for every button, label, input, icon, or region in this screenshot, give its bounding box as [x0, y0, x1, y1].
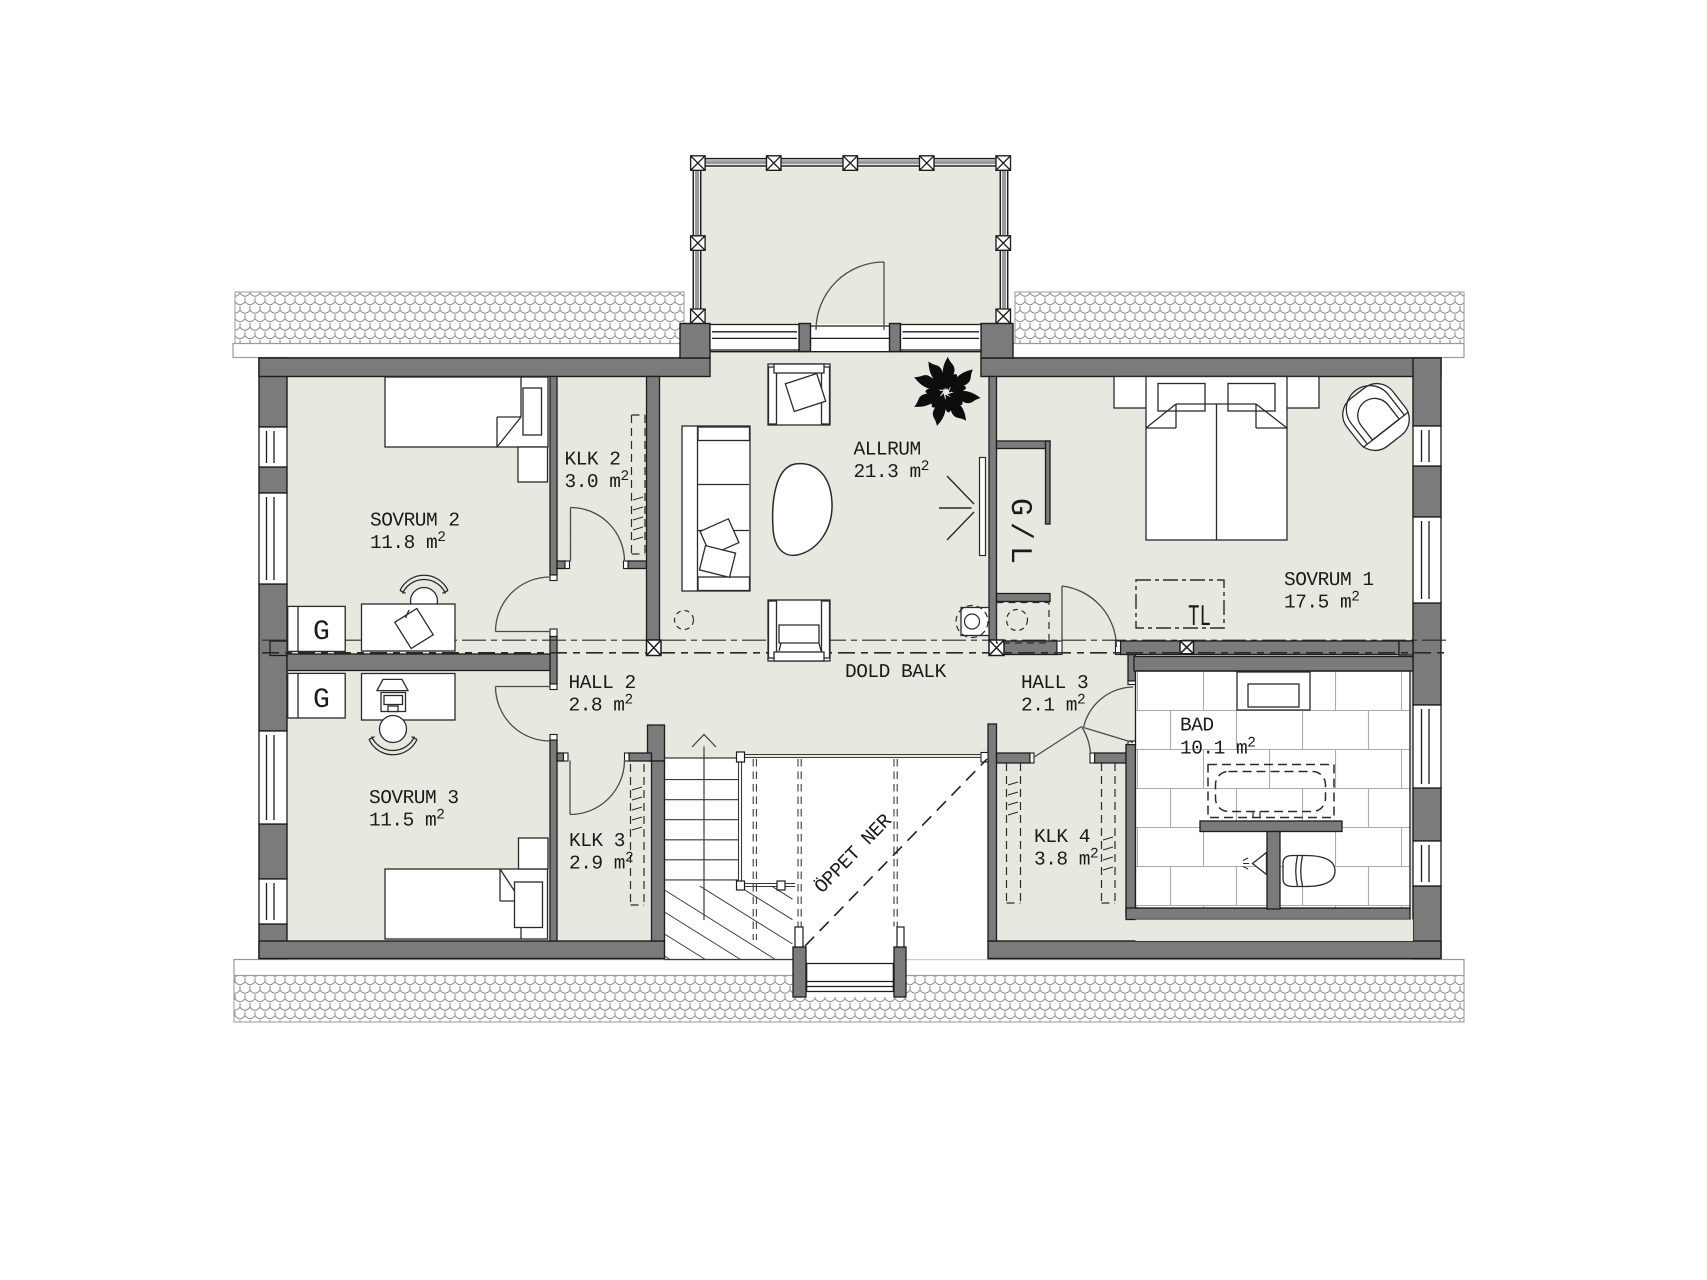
- svg-text:G: G: [313, 685, 330, 716]
- svg-text:DOLD BALK: DOLD BALK: [845, 661, 947, 683]
- svg-text:2.1 m2: 2.1 m2: [1021, 693, 1085, 717]
- svg-text:SOVRUM 3: SOVRUM 3: [369, 787, 459, 809]
- svg-text:11.8 m2: 11.8 m2: [370, 530, 445, 554]
- svg-text:21.3 m2: 21.3 m2: [854, 459, 929, 483]
- svg-text:11.5 m2: 11.5 m2: [369, 808, 444, 832]
- svg-text:17.5 m2: 17.5 m2: [1284, 590, 1359, 614]
- svg-text:SOVRUM 2: SOVRUM 2: [370, 510, 460, 532]
- svg-text:HALL 3: HALL 3: [1021, 672, 1088, 694]
- svg-text:2.8 m2: 2.8 m2: [569, 693, 633, 717]
- svg-text:G/L: G/L: [1002, 498, 1036, 570]
- svg-text:G: G: [313, 617, 330, 648]
- svg-text:SOVRUM 1: SOVRUM 1: [1284, 569, 1374, 591]
- svg-text:KLK 2: KLK 2: [565, 449, 621, 471]
- svg-text:KLK 4: KLK 4: [1034, 826, 1090, 848]
- svg-text:3.8 m2: 3.8 m2: [1034, 847, 1098, 871]
- svg-text:HALL 2: HALL 2: [569, 672, 636, 694]
- svg-text:10.1 m2: 10.1 m2: [1180, 736, 1255, 760]
- svg-text:2.9 m2: 2.9 m2: [569, 851, 633, 875]
- svg-text:TL: TL: [1188, 601, 1211, 635]
- svg-text:KLK 3: KLK 3: [569, 830, 625, 852]
- svg-text:ALLRUM: ALLRUM: [854, 439, 921, 461]
- svg-text:BAD: BAD: [1180, 715, 1214, 737]
- svg-text:3.0 m2: 3.0 m2: [565, 469, 629, 493]
